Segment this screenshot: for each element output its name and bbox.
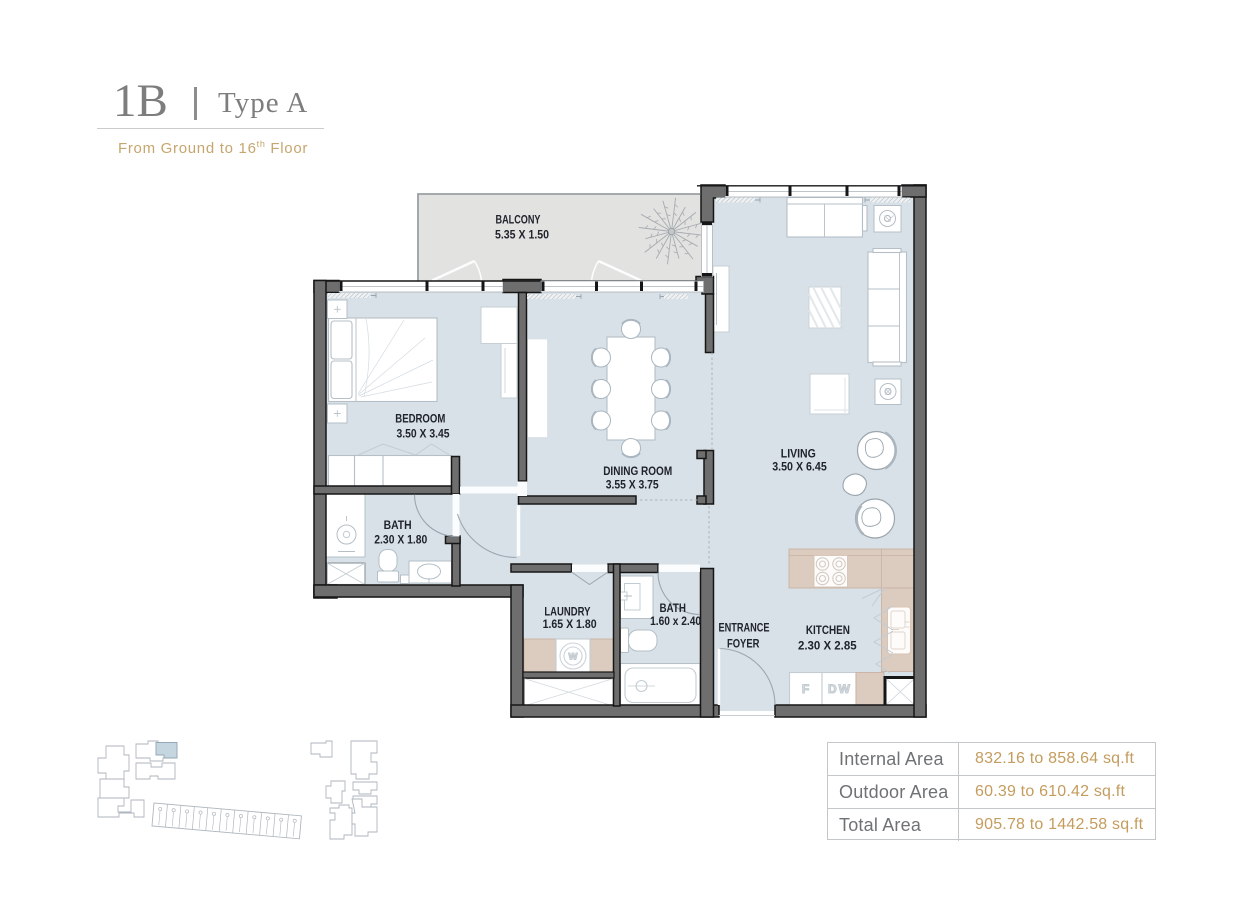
svg-text:LIVING: LIVING [781, 447, 816, 461]
svg-text:ENTRANCE: ENTRANCE [719, 621, 770, 635]
svg-text:3.55 X 3.75: 3.55 X 3.75 [606, 477, 659, 491]
svg-text:2.30 X 1.80: 2.30 X 1.80 [374, 533, 427, 547]
svg-text:BALCONY: BALCONY [496, 213, 541, 227]
svg-text:FOYER: FOYER [727, 637, 760, 651]
svg-text:BATH: BATH [384, 518, 412, 532]
svg-text:1.65 X 1.80: 1.65 X 1.80 [543, 617, 597, 631]
svg-text:BATH: BATH [659, 601, 686, 615]
svg-text:DW: DW [828, 682, 851, 696]
svg-text:KITCHEN: KITCHEN [806, 623, 850, 637]
svg-text:1.60 x 2.40: 1.60 x 2.40 [650, 614, 701, 628]
svg-text:3.50 X 6.45: 3.50 X 6.45 [772, 460, 827, 474]
svg-text:BEDROOM: BEDROOM [395, 412, 445, 426]
svg-text:F: F [802, 682, 809, 696]
svg-text:5.35 X 1.50: 5.35 X 1.50 [495, 228, 549, 242]
svg-text:2.30 X 2.85: 2.30 X 2.85 [798, 639, 857, 653]
svg-text:DINING ROOM: DINING ROOM [603, 464, 672, 478]
svg-text:3.50 X 3.45: 3.50 X 3.45 [397, 427, 450, 441]
svg-text:W: W [569, 652, 578, 663]
